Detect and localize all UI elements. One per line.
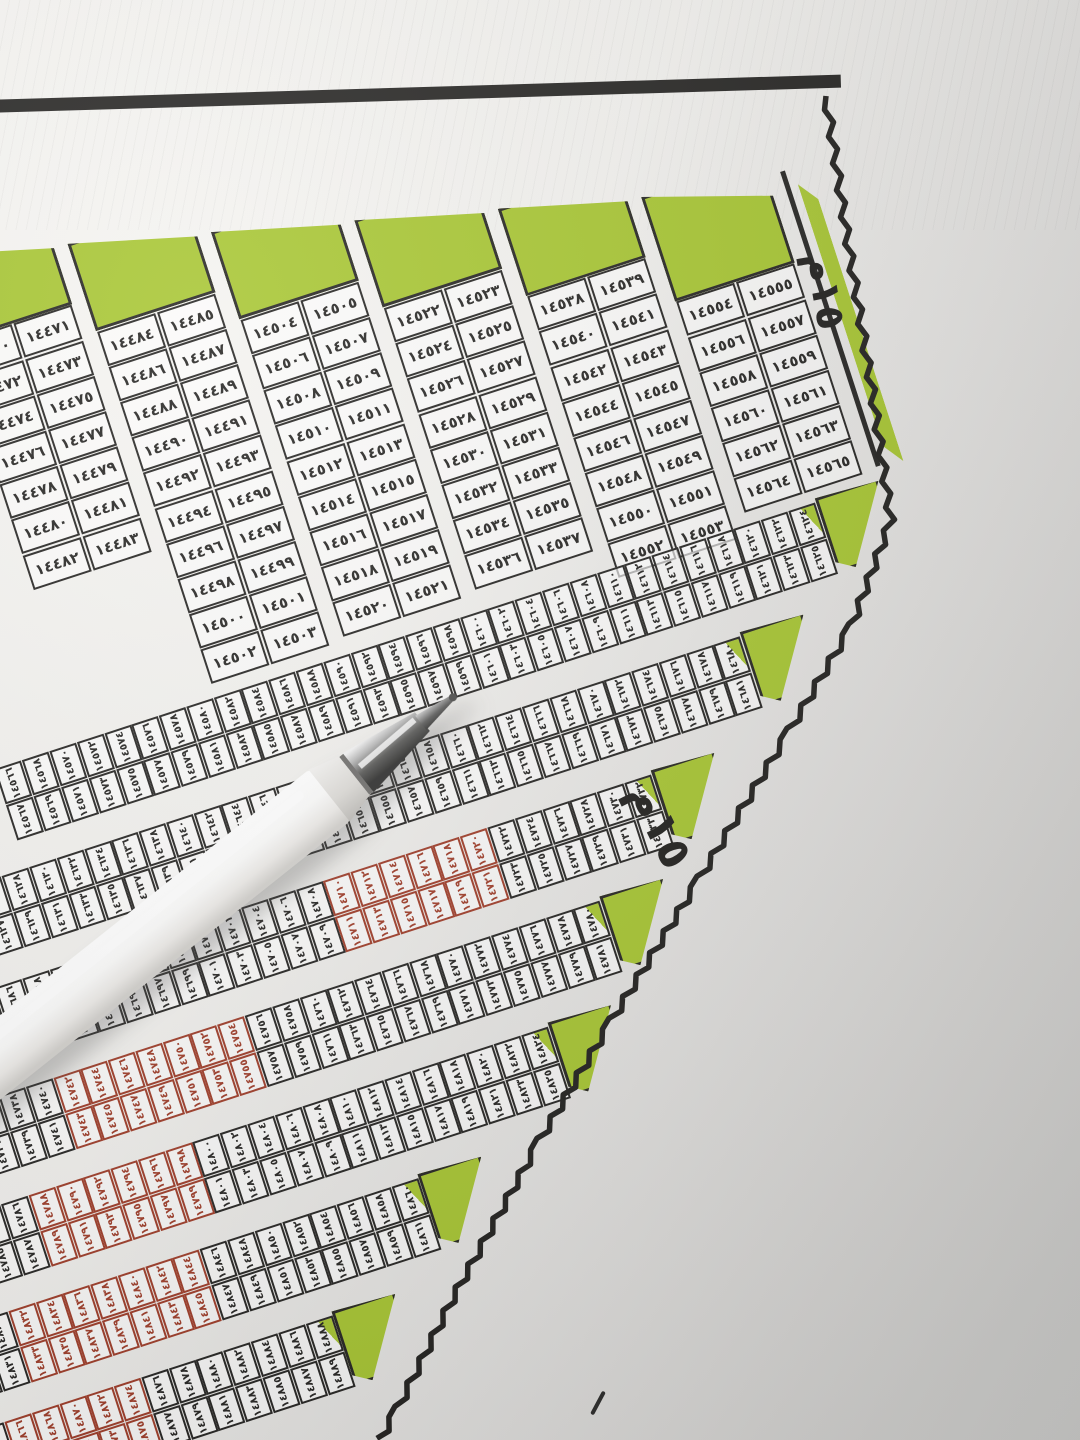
plot-number: ١٤٦٢٠ <box>742 525 763 559</box>
plot-number: ١٤٨٥٢ <box>290 1219 311 1253</box>
plot-number: ١٤٨٨٥ <box>271 1374 292 1408</box>
plot-number: ١٤٦٣٣ <box>77 891 98 925</box>
plot-number: ١٤٨٢٥ <box>541 1068 562 1102</box>
plot-number: ١٤٥٧٣ <box>97 775 118 809</box>
plot-number: ١٤٧٢١ <box>480 869 501 903</box>
plot-number: ١٤٧٦٧ <box>402 1004 423 1038</box>
plot-number: ١٤٧٩٠ <box>64 1183 85 1217</box>
plot-number: ١٤٨٣٩ <box>110 1317 131 1351</box>
plot-number: ١٤٥٩٨ <box>441 623 462 657</box>
plot-number: ١٤٨٢٣ <box>514 1077 535 1111</box>
plot-number: ١٤٨٧٨ <box>177 1365 198 1399</box>
plot-number: ١٤٦٣٥ <box>104 882 125 916</box>
plot-number: ١٤٨٣١ <box>1 1353 22 1387</box>
plot-number: ١٤٦٦٦ <box>530 704 551 738</box>
plot-number: ١٤٧٤٣ <box>73 1111 94 1145</box>
plot-number: ١٤٧٥١ <box>183 1075 204 1109</box>
plot-number: ١٤٦١٨ <box>715 534 736 568</box>
plot-number: ١٤٦٢٩ <box>22 909 43 943</box>
plot-number: ١٤٧٩٨ <box>174 1148 195 1182</box>
plot-number: ١٤٨١٢ <box>365 1085 386 1119</box>
plot-number: ١٤٧٢٤ <box>523 815 544 849</box>
plot-number: ١٤٨٣٠ <box>0 1317 11 1351</box>
plot-number: ١٤٦٧٠ <box>585 686 606 720</box>
plot-number: ١٤٧١٦ <box>414 851 435 885</box>
plot-number: ١٤٧٧٣ <box>484 977 505 1011</box>
plot-number: ١٤٦٦٩ <box>569 731 590 765</box>
subdivision-plan: ١٤٤٧٠١٤٤٧١١٤٤٧٢١٤٤٧٣١٤٤٧٤١٤٤٧٥١٤٤٧٦١٤٤٧٧… <box>0 0 1080 1440</box>
plot-number: ١٤٧٤٢ <box>62 1075 83 1109</box>
plot-number: ١٤٧٥٦ <box>253 1012 274 1046</box>
plot-number: ١٤٦٥٩ <box>433 775 454 809</box>
plot-number: ١٤٦٧٤ <box>640 668 661 702</box>
plot-number: ١٤٥٧٤ <box>113 730 134 764</box>
plot-number: ١٤٨٧٦ <box>150 1374 171 1408</box>
plot-number: ١٤٦٧٥ <box>651 704 672 738</box>
plot-number: ١٤٦١٦ <box>687 543 708 577</box>
plot-number: ١٤٦٧٦ <box>667 659 688 693</box>
plot-number: ١٤٨١٧ <box>432 1103 453 1137</box>
plot-number: ١٤٧٤٩ <box>155 1084 176 1118</box>
plot-number: ١٤٥٨٣ <box>234 730 255 764</box>
plot-number: ١٤٥٩٠ <box>332 659 353 693</box>
plot-number: ١٤٨٧٤ <box>122 1383 143 1417</box>
plot-number: ١٤٦٦٧ <box>542 740 563 774</box>
plot-number: ١٤٥٧٦ <box>140 721 161 755</box>
plot-number: ١٤٦٣٢ <box>65 855 86 889</box>
plot-number: ١٤٨٨٢ <box>232 1347 253 1381</box>
plot-number: ١٤٨٠٦ <box>283 1112 304 1146</box>
plot-number: ١٤٨٤٢ <box>154 1263 175 1297</box>
plot-number: ١٤٧٨٥ <box>0 1246 15 1280</box>
plot-number: ١٤٨٣٥ <box>56 1335 77 1369</box>
plot-number: ١٤٦٠٨ <box>578 579 599 613</box>
plot-number: ١٤٧٧٦ <box>527 923 548 957</box>
plot-number: ١٤٧٩٥ <box>131 1201 152 1235</box>
plot-map-photo: ١٤٤٧٠١٤٤٧١١٤٤٧٢١٤٤٧٣١٤٤٧٤١٤٤٧٥١٤٤٧٦١٤٤٧٧… <box>0 0 1080 1440</box>
plot-number: ١٤٨٢٢ <box>502 1041 523 1075</box>
plot-number: ١٤٦٦٣ <box>487 757 508 791</box>
plot-number: ١٤٧٣٦ <box>0 1101 1 1135</box>
plot-number: ١٤٧٦٥ <box>374 1013 395 1047</box>
plot-number: ١٤٧٣٨ <box>7 1092 28 1126</box>
plot-number: ١٤٧٧٧ <box>539 959 560 993</box>
plot-number: ١٤٧٢٥ <box>535 851 556 885</box>
plot-number: ١٤٧٦٩ <box>429 995 450 1029</box>
plot-number: ١٤٦٠٦ <box>550 588 571 622</box>
plot-number: ١٤٥٧٧ <box>152 757 173 791</box>
plot-number: ١٤٧٦٢ <box>335 986 356 1020</box>
plot-number: ١٤٦٦٤ <box>503 713 524 747</box>
plot-number: ١٤٧٩٩ <box>185 1183 206 1217</box>
plot-number: ١٤٧٢٩ <box>590 833 611 867</box>
plot-number: ١٤٦٢٥ <box>809 544 830 578</box>
plot-number: ١٤٨٤٠ <box>126 1272 147 1306</box>
plot-number: ١٤٧٧١ <box>456 986 477 1020</box>
plot-number: ١٤٨١٩ <box>459 1095 480 1129</box>
plot-number: ١٤٨٠٢ <box>228 1130 249 1164</box>
plot-number: ١٤٦٨٠ <box>722 641 743 675</box>
plot-number: ١٤٧٧٢ <box>472 941 493 975</box>
plot-number: ١٤٧٤١ <box>46 1119 67 1153</box>
plot-number: ١٤٦٢٢ <box>769 517 790 551</box>
plot-number: ١٤٥٦٨ <box>30 757 51 791</box>
plot-number: ١٤٧٤٥ <box>101 1102 122 1136</box>
plot-number: ١٤٨١١ <box>350 1130 371 1164</box>
plot-number: ١٤٨٠٨ <box>311 1103 332 1137</box>
plot-number: ١٤٨١٦ <box>420 1068 441 1102</box>
plot-number: ١٤٦١٥ <box>672 588 693 622</box>
plot-number: ١٤٨٦٨ <box>40 1410 61 1440</box>
plot-number: ١٤٨٨٣ <box>244 1383 265 1417</box>
plot-number: ١٤٦٥٥ <box>378 793 399 827</box>
plot-number: ١٤٧٢٦ <box>551 806 572 840</box>
plot-number: ١٤٧٢٧ <box>562 842 583 876</box>
plot-number: ١٤٥٨٠ <box>195 703 216 737</box>
plot-number: ١٤٦١٩ <box>726 570 747 604</box>
plot-number: ١٤٧٤٧ <box>128 1093 149 1127</box>
plot-number: ١٤٧٦٨ <box>417 959 438 993</box>
plot-number: ١٤٥٨١ <box>206 739 227 773</box>
plot-number: ١٤٧٢٨ <box>578 797 599 831</box>
plot-number: ١٤٨٨٨ <box>314 1321 335 1355</box>
plot-number: ١٤٧١٣ <box>371 905 392 939</box>
plot-number: ١٤٨٤٨ <box>236 1237 257 1271</box>
plot-number: ١٤٥٧٢ <box>85 739 106 773</box>
plot-number: ١٤٦٨١ <box>734 677 755 711</box>
plot-number: ١٤٧٠٨ <box>304 886 325 920</box>
plot-number: ١٤٧٨٨ <box>37 1192 58 1226</box>
plot-number: ١٤٥٩٢ <box>359 650 380 684</box>
plot-number: ١٤٦٦١ <box>460 766 481 800</box>
plot-number: ١٤٧٦١ <box>320 1031 341 1065</box>
plot-number: ١٤٨٣٨ <box>99 1281 120 1315</box>
plot-number: ١٤٥٨٦ <box>277 677 298 711</box>
plot-number: ١٤٧٦٠ <box>308 995 329 1029</box>
plot-number: ١٤٦٧٢ <box>612 677 633 711</box>
plot-number: ١٤٧٩٢ <box>92 1174 113 1208</box>
plot-number: ١٤٦٠٧ <box>562 624 583 658</box>
plot-number: ١٤٨٤٤ <box>181 1255 202 1289</box>
plot-number: ١٤٦٩٩ <box>179 967 200 1001</box>
plot-number: ١٤٨٠٣ <box>240 1166 261 1200</box>
plot-number: ١٤٨٥٦ <box>345 1201 366 1235</box>
plot-number: ١٤٧٠٤ <box>250 904 271 938</box>
plot-number: ١٤٦٩٧ <box>152 976 173 1010</box>
plot-number: ١٤٨٣٤ <box>44 1299 65 1333</box>
plot-number: ١٤٧٤٦ <box>116 1057 137 1091</box>
plot-number: ١٤٧١٤ <box>386 860 407 894</box>
plot-number: ١٤٧٥٤ <box>226 1021 247 1055</box>
plot-number: ١٤٦٢٨ <box>10 873 31 907</box>
plot-number: ١٤٨٧٠ <box>68 1401 89 1435</box>
plot-number: ١٤٦٢٦ <box>0 881 4 915</box>
plot-number: ١٤٦١٠ <box>605 570 626 604</box>
plot-number: ١٤٧٧٠ <box>445 950 466 984</box>
plot-number: ١٤٦٠٢ <box>496 605 517 639</box>
plot-number: ١٤٨١٥ <box>404 1112 425 1146</box>
plot-number: ١٤٥٨٧ <box>288 713 309 747</box>
plot-number: ١٤٧٥٧ <box>265 1048 286 1082</box>
plot-number: ١٤٦٧١ <box>597 722 618 756</box>
plot-number: ١٤٦٢٧ <box>0 917 16 951</box>
plot-number: ١٤٨٧٢ <box>95 1392 116 1426</box>
plot-number: ١٤٥٧٠ <box>58 748 79 782</box>
plot-number: ١٤٨٤١ <box>138 1308 159 1342</box>
plot-number: ١٤٧٠١ <box>206 958 227 992</box>
plot-number: ١٤٨٧٧ <box>161 1410 182 1440</box>
plot-number: ١٤٨٨١ <box>216 1392 237 1426</box>
plot-number: ١٤٨٥٩ <box>384 1228 405 1262</box>
plot-number: ١٤٧٨٤ <box>0 1210 3 1244</box>
plot-number: ١٤٦٧٩ <box>706 686 727 720</box>
plot-number: ١٤٦٠٣ <box>507 641 528 675</box>
plot-number: ١٤٦٣١ <box>49 900 70 934</box>
plot-number: ١٤٧٩١ <box>76 1219 97 1253</box>
plot-number: ١٤٦٢١ <box>754 561 775 595</box>
plot-number: ١٤٧١٨ <box>441 842 462 876</box>
plot-number: ١٤٧٣٩ <box>18 1128 39 1162</box>
plot-number: ١٤٧٥٨ <box>281 1003 302 1037</box>
plot-number: ١٤٨١٨ <box>447 1059 468 1093</box>
plot-number: ١٤٦١٢ <box>633 561 654 595</box>
plot-number: ١٤٨٥٥ <box>329 1246 350 1280</box>
plot-number: ١٤٨٠٧ <box>295 1148 316 1182</box>
plot-number: ١٤٨٥٤ <box>318 1210 339 1244</box>
plot-number: ١٤٨٢١ <box>486 1086 507 1120</box>
plot-number: ١٤٨٨٩ <box>326 1357 347 1391</box>
plot-number: ١٤٧١٩ <box>453 878 474 912</box>
plot-number: ١٤٧٠٥ <box>261 940 282 974</box>
plot-number: ١٤٧٥٩ <box>292 1039 313 1073</box>
plot-number: ١٤٨٣٧ <box>83 1326 104 1360</box>
plot-number: ١٤٥٩٦ <box>414 632 435 666</box>
plot-number: ١٤٧٠٣ <box>234 949 255 983</box>
plot-number: ١٤٥٧٥ <box>124 766 145 800</box>
plot-number: ١٤٦٧٨ <box>695 650 716 684</box>
plot-number: ١٤٧٩٧ <box>158 1192 179 1226</box>
plot-number: ١٤٥٦٩ <box>42 793 63 827</box>
plot-number: ١٤٦٠٤ <box>523 597 544 631</box>
plot-number: ١٤٧٦٦ <box>390 968 411 1002</box>
plot-number: ١٤٦٤٠ <box>174 819 195 853</box>
plot-number: ١٤٥٨٩ <box>316 704 337 738</box>
plot-number: ١٤٥٨٢ <box>222 694 243 728</box>
plot-number: ١٤٨٢٠ <box>475 1050 496 1084</box>
plot-number: ١٤٦٧٧ <box>679 695 700 729</box>
plot-number: ١٤٧١٢ <box>359 869 380 903</box>
plot-number: ١٤٧٨٧ <box>21 1237 42 1271</box>
plot-number: ١٤٨٥٣ <box>302 1255 323 1289</box>
plot-number: ١٤٧٧٤ <box>499 932 520 966</box>
plot-number: ١٤٧٠٩ <box>316 922 337 956</box>
plot-number: ١٤٨٢٤ <box>530 1032 551 1066</box>
plot-number: ١٤٦٠٠ <box>468 614 489 648</box>
plot-number: ١٤٨٦٠ <box>400 1183 421 1217</box>
plot-number: ١٤٨٥٠ <box>263 1228 284 1262</box>
plot-number: ١٤٧٧٨ <box>554 915 575 949</box>
plot-number: ١٤٧٦٣ <box>347 1022 368 1056</box>
plot-number: ١٤٦٠٩ <box>590 615 611 649</box>
plot-number: ١٤٧٨٠ <box>582 906 603 940</box>
plot-number: ١٤٧٨٩ <box>48 1228 69 1262</box>
plot-number: ١٤٦٢٣ <box>781 552 802 586</box>
plot-number: ١٤٨٥١ <box>275 1264 296 1298</box>
plot-number: ١٤٧٤٨ <box>144 1048 165 1082</box>
plot-number: ١٤٨٨٠ <box>204 1356 225 1390</box>
plot-number: ١٤٦١٣ <box>644 597 665 631</box>
plot-number: ١٤٨٣٦ <box>71 1290 92 1324</box>
plot-number: ١٤٧٩٦ <box>146 1156 167 1190</box>
plot-number: ١٤٧٨١ <box>593 942 614 976</box>
plot-number: ١٤٨٠٠ <box>201 1139 222 1173</box>
plot-number: ١٤٥٨٤ <box>249 686 270 720</box>
plot-number: ١٤٧١٥ <box>398 896 419 930</box>
plot-number: ١٤٨١٠ <box>338 1094 359 1128</box>
plot-number: ١٤٨٥٧ <box>357 1237 378 1271</box>
plot-number: ١٤٥٨٥ <box>261 721 282 755</box>
plot-number: ١٤٥٩١ <box>343 695 364 729</box>
plot-number: ١٤٧١٠ <box>332 878 353 912</box>
plot-number: ١٤٥٧٨ <box>167 712 188 746</box>
plot-number: ١٤٨٨٤ <box>259 1338 280 1372</box>
plot-number: ١٤٨٧٥ <box>134 1419 155 1440</box>
plot-number: ١٤٧٥٥ <box>237 1057 258 1091</box>
plot-number: ١٤٨٦١ <box>412 1219 433 1253</box>
plot-number: ١٤٨٧٩ <box>189 1401 210 1435</box>
plot-number: ١٤٧٢٠ <box>469 833 490 867</box>
plot-number: ١٤٦٦٥ <box>515 748 536 782</box>
plot-number: ١٤٧٦٤ <box>363 977 384 1011</box>
plot-number: ١٤٨٣٢ <box>17 1308 38 1342</box>
plot-number: ١٤٧١٧ <box>425 887 446 921</box>
plot-number: ١٤٨٨٧ <box>298 1366 319 1400</box>
plot-number: ١٤٨٦٦ <box>13 1419 34 1440</box>
plot-number: ١٤٦٣٦ <box>120 837 141 871</box>
plot-number: ١٤٨٨٦ <box>287 1330 308 1364</box>
plot-number: ١٤٧٢٣ <box>508 860 529 894</box>
plot-number: ١٤٧١١ <box>343 913 364 947</box>
plot-number: ١٤٧٤٤ <box>89 1066 110 1100</box>
plot-number: ١٤٥٨٨ <box>304 668 325 702</box>
plot-number: ١٤٦٠١ <box>480 650 501 684</box>
plot-number: ١٤٨١٤ <box>393 1076 414 1110</box>
plot-number: ١٤٦٧٣ <box>624 713 645 747</box>
plot-number: ١٤٧٤٠ <box>34 1084 55 1118</box>
plot-number: ١٤٨٣٣ <box>28 1344 49 1378</box>
plot-number: ١٤٧٩٤ <box>119 1165 140 1199</box>
plot-number: ١٤٧٧٥ <box>511 968 532 1002</box>
plot-number: ١٤٨٤٥ <box>193 1290 214 1324</box>
plot-number: ١٤٦٦٢ <box>476 721 497 755</box>
plot-number: ١٤٦١٧ <box>699 579 720 613</box>
plot-number: ١٤٨١٣ <box>377 1121 398 1155</box>
plot-number: ١٤٧٩٣ <box>103 1210 124 1244</box>
plot-number: ١٤٦٣٠ <box>38 864 59 898</box>
plot-number: ١٤٦٠٥ <box>535 633 556 667</box>
plot-number: ١٤٨٠٩ <box>322 1139 343 1173</box>
plot-number: ١٤٨٤٧ <box>220 1282 241 1316</box>
plot-number: ١٤٦٣٤ <box>92 846 113 880</box>
plot-number: ١٤٥٦٧ <box>15 802 36 836</box>
plot-number: ١٤٨٠٥ <box>267 1157 288 1191</box>
plot-number: ١٤٧٣٧ <box>0 1137 12 1171</box>
plot-number: ١٤٨٤٩ <box>247 1273 268 1307</box>
plot-number: ١٤٧٥٣ <box>210 1066 231 1100</box>
plot-number: ١٤٨٧٣ <box>107 1428 128 1440</box>
plot-number: ١٤٦٢٤ <box>797 508 818 542</box>
plot-number: ١٤٨٠٤ <box>256 1121 277 1155</box>
plot-number: ١٤٦١١ <box>617 606 638 640</box>
plot-number: ١٤٥٧٩ <box>179 748 200 782</box>
plot-number: ١٤٨٤٦ <box>208 1246 229 1280</box>
plot-number: ١٤٧٥٢ <box>198 1030 219 1064</box>
plot-number: ١٤٨٠١ <box>213 1175 234 1209</box>
plot-number: ١٤٨٤٣ <box>165 1299 186 1333</box>
plot-number: ١٤٧٢٢ <box>496 824 517 858</box>
plot-number: ١٤٨٧١ <box>79 1437 100 1440</box>
plot-number: ١٤٥٦٦ <box>3 766 24 800</box>
plot-number: ١٤٨٥٨ <box>372 1192 393 1226</box>
plot-number: ١٤٦٣٨ <box>147 828 168 862</box>
plot-number: ١٤٧٥٠ <box>171 1039 192 1073</box>
plot-number: ١٤٥٧١ <box>69 784 90 818</box>
plot-number: ١٤٦١٤ <box>660 552 681 586</box>
plot-number: ١٤٦٥٧ <box>405 784 426 818</box>
plot-number: ١٤٦٦٨ <box>558 695 579 729</box>
plot-number: ١٤٧٠٧ <box>289 931 310 965</box>
plot-number: ١٤٧٧٩ <box>566 950 587 984</box>
plot-number: ١٤٧٨٦ <box>9 1201 30 1235</box>
plot-number: ١٤٥٩٤ <box>386 641 407 675</box>
plot-number: ١٤٧٠٦ <box>277 895 298 929</box>
